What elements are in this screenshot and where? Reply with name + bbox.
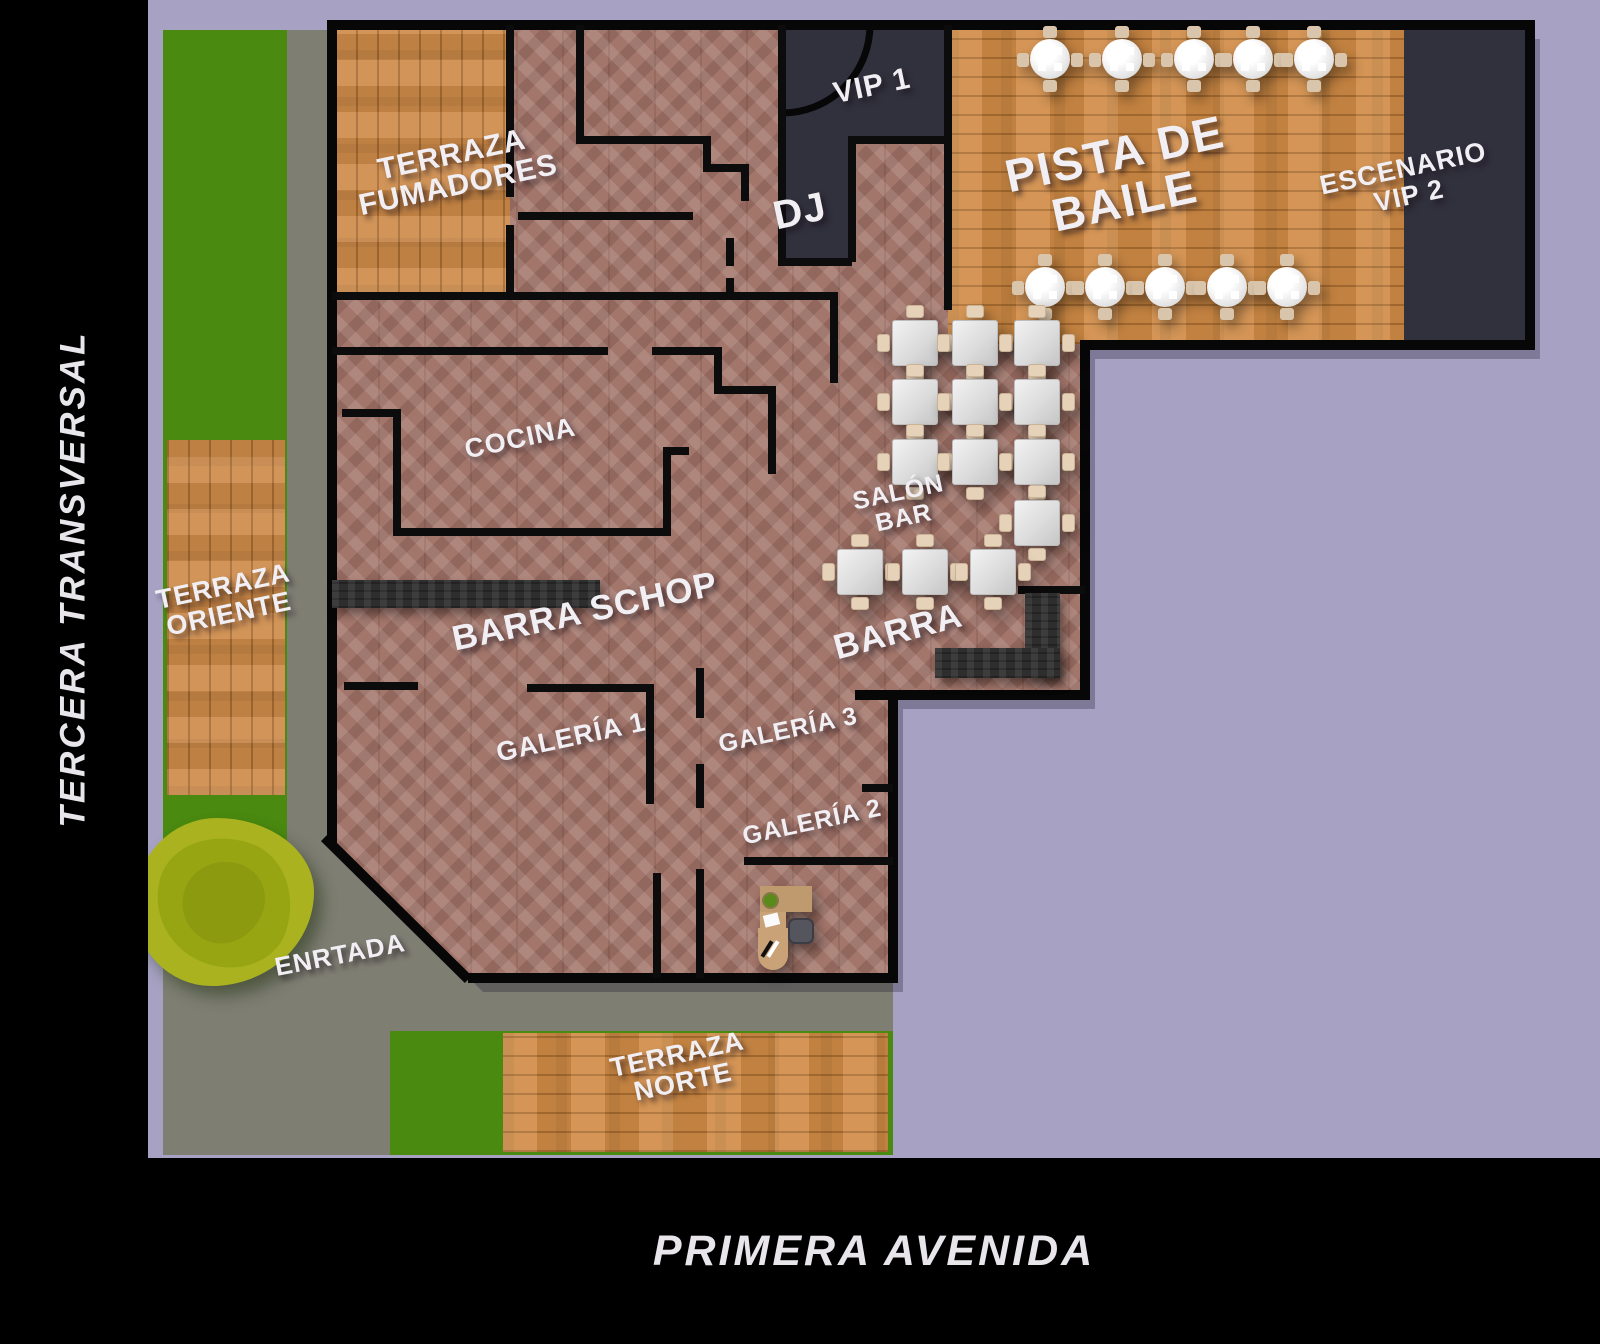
- chair: [984, 597, 1002, 610]
- chair: [906, 305, 924, 318]
- chair: [1280, 254, 1294, 266]
- chair: [877, 453, 890, 471]
- interior-wall: [696, 668, 704, 718]
- interior-wall: [848, 136, 948, 144]
- interior-wall: [663, 447, 671, 536]
- square-table-top: [952, 379, 998, 425]
- chair: [1254, 281, 1266, 295]
- street-label-tercera-transversal: TERCERA TRANSVERSAL: [54, 330, 94, 827]
- interior-wall: [768, 386, 776, 474]
- street-band-left: TERCERA TRANSVERSAL: [0, 0, 148, 1158]
- exterior-wall: [1080, 340, 1090, 700]
- chair: [1028, 364, 1046, 377]
- chair: [1194, 281, 1206, 295]
- interior-wall: [663, 447, 689, 455]
- chair: [999, 453, 1012, 471]
- chair: [999, 514, 1012, 532]
- chair: [916, 534, 934, 547]
- interior-wall: [696, 764, 704, 808]
- square-table-top: [1014, 379, 1060, 425]
- chair: [1062, 514, 1075, 532]
- street-label-primera-avenida: PRIMERA AVENIDA: [653, 1227, 1095, 1276]
- interior-wall: [332, 292, 838, 300]
- square-table-top: [902, 549, 948, 595]
- exterior-wall: [1525, 20, 1535, 350]
- interior-wall: [944, 25, 952, 310]
- square-table-top: [892, 379, 938, 425]
- chair: [1028, 424, 1046, 437]
- interior-wall: [741, 164, 749, 201]
- chair: [1220, 308, 1234, 320]
- site-map: TERRAZA FUMADORES VIP 1 DJ PISTA DE BAIL…: [148, 0, 1600, 1158]
- street-band-bottom: PRIMERA AVENIDA: [148, 1158, 1600, 1344]
- chair: [1062, 334, 1075, 352]
- exterior-wall: [1080, 340, 1535, 350]
- chair: [1280, 308, 1294, 320]
- chair: [966, 305, 984, 318]
- interior-wall: [862, 784, 893, 792]
- interior-wall: [696, 869, 704, 978]
- chair: [966, 487, 984, 500]
- round-table-top: [1174, 39, 1214, 79]
- exterior-wall: [888, 690, 898, 983]
- interior-wall: [518, 212, 693, 220]
- round-table-top: [1294, 39, 1334, 79]
- chair: [822, 563, 835, 581]
- interior-wall: [576, 136, 711, 144]
- chair: [1098, 254, 1112, 266]
- interior-wall: [506, 225, 514, 293]
- chair: [1028, 485, 1046, 498]
- square-table-top: [1014, 500, 1060, 546]
- square-table-top: [1014, 439, 1060, 485]
- round-table-top: [1030, 39, 1070, 79]
- chair: [955, 563, 968, 581]
- round-table-top: [1233, 39, 1273, 79]
- chair: [1158, 254, 1172, 266]
- chair: [1043, 26, 1057, 38]
- chair: [966, 364, 984, 377]
- chair: [1281, 53, 1293, 67]
- interior-wall: [332, 347, 608, 355]
- interior-wall: [344, 682, 418, 690]
- square-table-top: [837, 549, 883, 595]
- chair: [1115, 26, 1129, 38]
- chair: [1017, 53, 1029, 67]
- chair: [1089, 53, 1101, 67]
- interior-wall: [714, 386, 776, 394]
- chair: [937, 393, 950, 411]
- chair: [1115, 80, 1129, 92]
- chair: [1062, 393, 1075, 411]
- chair: [851, 597, 869, 610]
- round-table-top: [1102, 39, 1142, 79]
- round-table-top: [1145, 267, 1185, 307]
- interior-wall: [726, 238, 734, 266]
- reception-desk: [756, 882, 826, 977]
- chair: [877, 393, 890, 411]
- chair: [1038, 254, 1052, 266]
- chair: [1158, 308, 1172, 320]
- desk-office-chair: [788, 918, 814, 944]
- chair: [999, 334, 1012, 352]
- chair: [906, 424, 924, 437]
- interior-wall: [848, 136, 856, 262]
- chair: [906, 364, 924, 377]
- chair: [1220, 254, 1234, 266]
- barra-counter-horizontal: [935, 648, 1060, 678]
- chair: [1187, 80, 1201, 92]
- chair: [984, 534, 1002, 547]
- chair: [1028, 305, 1046, 318]
- chair: [999, 393, 1012, 411]
- interior-wall: [726, 278, 734, 300]
- chair: [1018, 563, 1031, 581]
- interior-wall: [653, 873, 661, 978]
- chair: [1071, 53, 1083, 67]
- chair: [1062, 453, 1075, 471]
- chair: [1246, 80, 1260, 92]
- interior-wall: [576, 25, 584, 140]
- interior-wall: [646, 684, 654, 804]
- chair: [966, 424, 984, 437]
- exterior-wall: [468, 973, 898, 983]
- interior-wall: [393, 409, 401, 536]
- interior-wall: [342, 409, 400, 417]
- interior-wall: [652, 347, 722, 355]
- chair: [887, 563, 900, 581]
- exterior-wall: [327, 20, 337, 843]
- chair: [1098, 308, 1112, 320]
- round-table-top: [1207, 267, 1247, 307]
- interior-wall: [527, 684, 650, 692]
- square-table-top: [952, 320, 998, 366]
- floor-plan-canvas: TERCERA TRANSVERSAL PRIMERA AVENIDA: [0, 0, 1600, 1344]
- chair: [1335, 53, 1347, 67]
- chair: [1307, 26, 1321, 38]
- chair: [1220, 53, 1232, 67]
- square-table-top: [892, 320, 938, 366]
- chair: [1308, 281, 1320, 295]
- desk-plant: [764, 894, 777, 907]
- interior-wall: [393, 528, 671, 536]
- chair: [937, 334, 950, 352]
- chair: [1132, 281, 1144, 295]
- round-table-top: [1025, 267, 1065, 307]
- round-table-top: [1267, 267, 1307, 307]
- round-table-top: [1085, 267, 1125, 307]
- chair: [877, 334, 890, 352]
- chair: [1307, 80, 1321, 92]
- square-table-top: [970, 549, 1016, 595]
- square-table-top: [952, 439, 998, 485]
- square-table-top: [1014, 320, 1060, 366]
- chair: [1028, 548, 1046, 561]
- interior-wall: [778, 258, 852, 266]
- chair: [1187, 26, 1201, 38]
- interior-wall: [744, 857, 893, 865]
- chair: [1143, 53, 1155, 67]
- chair: [1246, 26, 1260, 38]
- chair: [1012, 281, 1024, 295]
- chair: [1161, 53, 1173, 67]
- chair: [1072, 281, 1084, 295]
- interior-wall: [830, 292, 838, 383]
- chair: [1043, 80, 1057, 92]
